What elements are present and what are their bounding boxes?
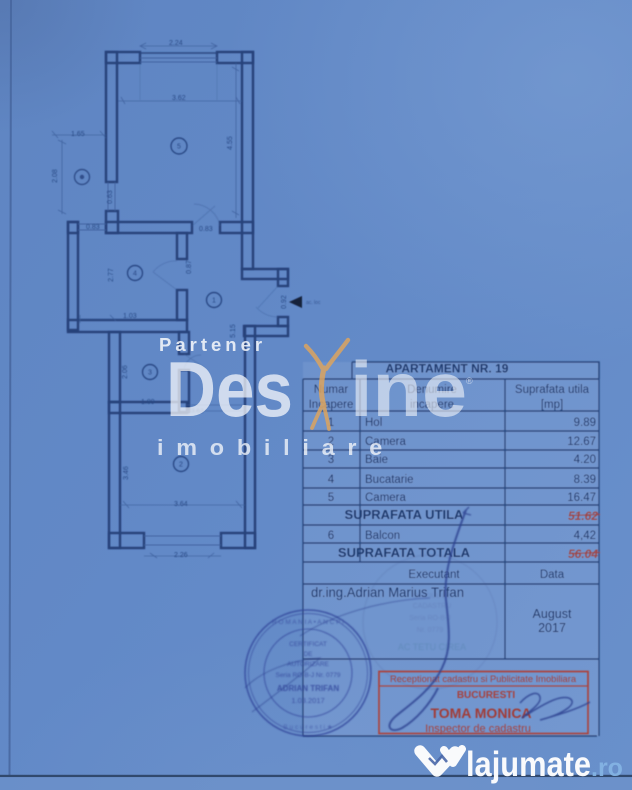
svg-text:BUCURESTI: BUCURESTI [457, 690, 516, 701]
svg-text:1.89: 1.89 [141, 399, 155, 406]
svg-text:2.24: 2.24 [169, 40, 183, 47]
svg-text:2.77: 2.77 [108, 268, 115, 282]
svg-text:2: 2 [179, 462, 183, 469]
svg-text:Nr. 0779: Nr. 0779 [417, 627, 444, 634]
svg-text:5: 5 [328, 492, 334, 504]
svg-text:Executant: Executant [408, 569, 460, 581]
svg-text:1.65: 1.65 [71, 131, 85, 138]
svg-text:AC TETU CIREA: AC TETU CIREA [398, 642, 466, 652]
svg-text:R O M A N I A • A N C P I: R O M A N I A • A N C P I [272, 619, 344, 626]
svg-text:ine: ine [350, 345, 467, 433]
svg-text:12.67: 12.67 [567, 436, 596, 448]
svg-text:8.39: 8.39 [574, 474, 596, 486]
svg-text:4: 4 [133, 271, 137, 278]
svg-text:3: 3 [148, 370, 152, 377]
svg-text:Suprafata utila: Suprafata utila [515, 384, 590, 396]
svg-text:0.63: 0.63 [107, 190, 114, 204]
svg-text:4.20: 4.20 [574, 454, 596, 466]
svg-text:3.46: 3.46 [123, 466, 130, 480]
svg-text:B u c u r e s t i ★: B u c u r e s t i ★ [283, 723, 332, 731]
svg-text:lajumate: lajumate [466, 745, 591, 784]
svg-text:5: 5 [177, 144, 181, 151]
svg-text:2.06: 2.06 [122, 365, 129, 379]
svg-text:Seria RO-B-J Nr. 0779: Seria RO-B-J Nr. 0779 [275, 672, 340, 679]
svg-text:[mp]: [mp] [541, 399, 563, 411]
svg-text:imobiliare: imobiliare [157, 435, 395, 460]
svg-text:9.89: 9.89 [574, 417, 596, 429]
svg-text:August: August [533, 607, 572, 621]
svg-text:2.08: 2.08 [52, 169, 59, 183]
svg-text:®: ® [466, 376, 473, 386]
svg-text:0.83: 0.83 [86, 224, 100, 231]
svg-text:ac. loc: ac. loc [306, 300, 321, 306]
svg-text:TOMA MONICA: TOMA MONICA [430, 705, 531, 721]
svg-text:2017: 2017 [538, 621, 566, 635]
svg-text:Incapere: Incapere [309, 399, 354, 411]
svg-text:Seria RO-B-J: Seria RO-B-J [409, 615, 451, 622]
svg-text:Des: Des [166, 345, 293, 433]
svg-text:.ro: .ro [591, 754, 623, 782]
svg-text:6: 6 [328, 530, 334, 542]
svg-text:Balcon: Balcon [365, 530, 400, 542]
svg-text:2.26: 2.26 [174, 552, 188, 559]
svg-text:DE: DE [303, 651, 313, 658]
svg-text:0.87: 0.87 [186, 260, 193, 274]
svg-text:4: 4 [328, 474, 335, 486]
svg-text:Receptionat cadastru si Public: Receptionat cadastru si Publicitate Imob… [390, 674, 576, 684]
svg-text:Inspector de cadastru: Inspector de cadastru [425, 723, 531, 735]
svg-text:CERTIFICAT: CERTIFICAT [289, 641, 327, 648]
svg-text:1.03: 1.03 [123, 313, 137, 320]
svg-text:Data: Data [540, 569, 565, 581]
svg-text:Bucatarie: Bucatarie [365, 474, 414, 486]
svg-text:Camera: Camera [365, 492, 407, 504]
svg-text:4,42: 4,42 [574, 530, 596, 542]
svg-text:1: 1 [212, 298, 216, 305]
svg-text:0.92: 0.92 [281, 295, 288, 309]
svg-text:4.55: 4.55 [227, 136, 234, 150]
svg-text:0.83: 0.83 [199, 226, 213, 233]
svg-text:SUPRAFATA UTILA: SUPRAFATA UTILA [345, 507, 465, 522]
svg-text:16.47: 16.47 [567, 492, 596, 504]
svg-text:3.62: 3.62 [172, 95, 186, 102]
svg-text:3.64: 3.64 [174, 501, 188, 508]
svg-text:1.03.2017: 1.03.2017 [291, 696, 324, 705]
